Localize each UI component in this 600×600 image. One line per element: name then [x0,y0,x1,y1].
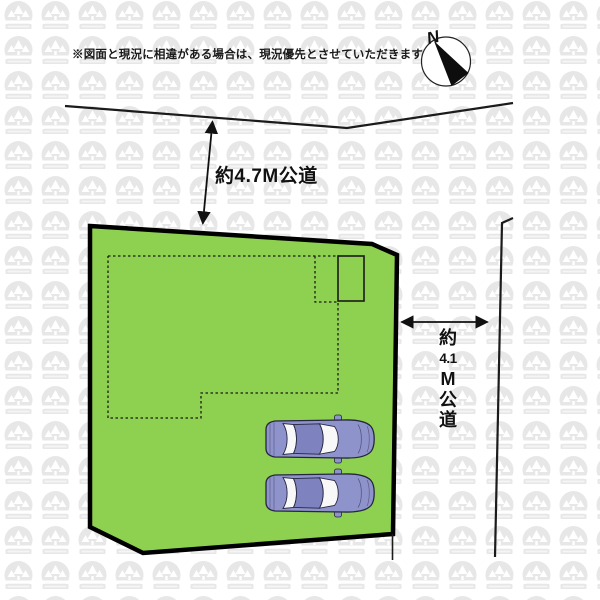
right-road-dimension-label: 約 4.1 M 公 道 [435,328,461,431]
site-plan-svg [0,0,600,600]
right-road-line [495,218,513,557]
right-road-char: M [441,369,456,390]
top-road-line [65,103,513,128]
car-parked-1 [266,415,374,463]
right-road-char: 4.1 [439,349,456,370]
site-plan-canvas: ※図面と現況に相違がある場合は、現況優先とさせていただきます 約4.7M公道 約… [0,0,600,600]
dimension-arrow-vertical [203,122,213,224]
disclaimer-text: ※図面と現況に相違がある場合は、現況優先とさせていただきます [72,46,423,62]
right-road-char: 公 [439,390,457,411]
right-road-char: 道 [439,410,457,431]
top-road-dimension-label: 約4.7M公道 [215,161,318,188]
car-parked-2 [266,469,374,517]
right-road-char: 約 [439,328,457,349]
